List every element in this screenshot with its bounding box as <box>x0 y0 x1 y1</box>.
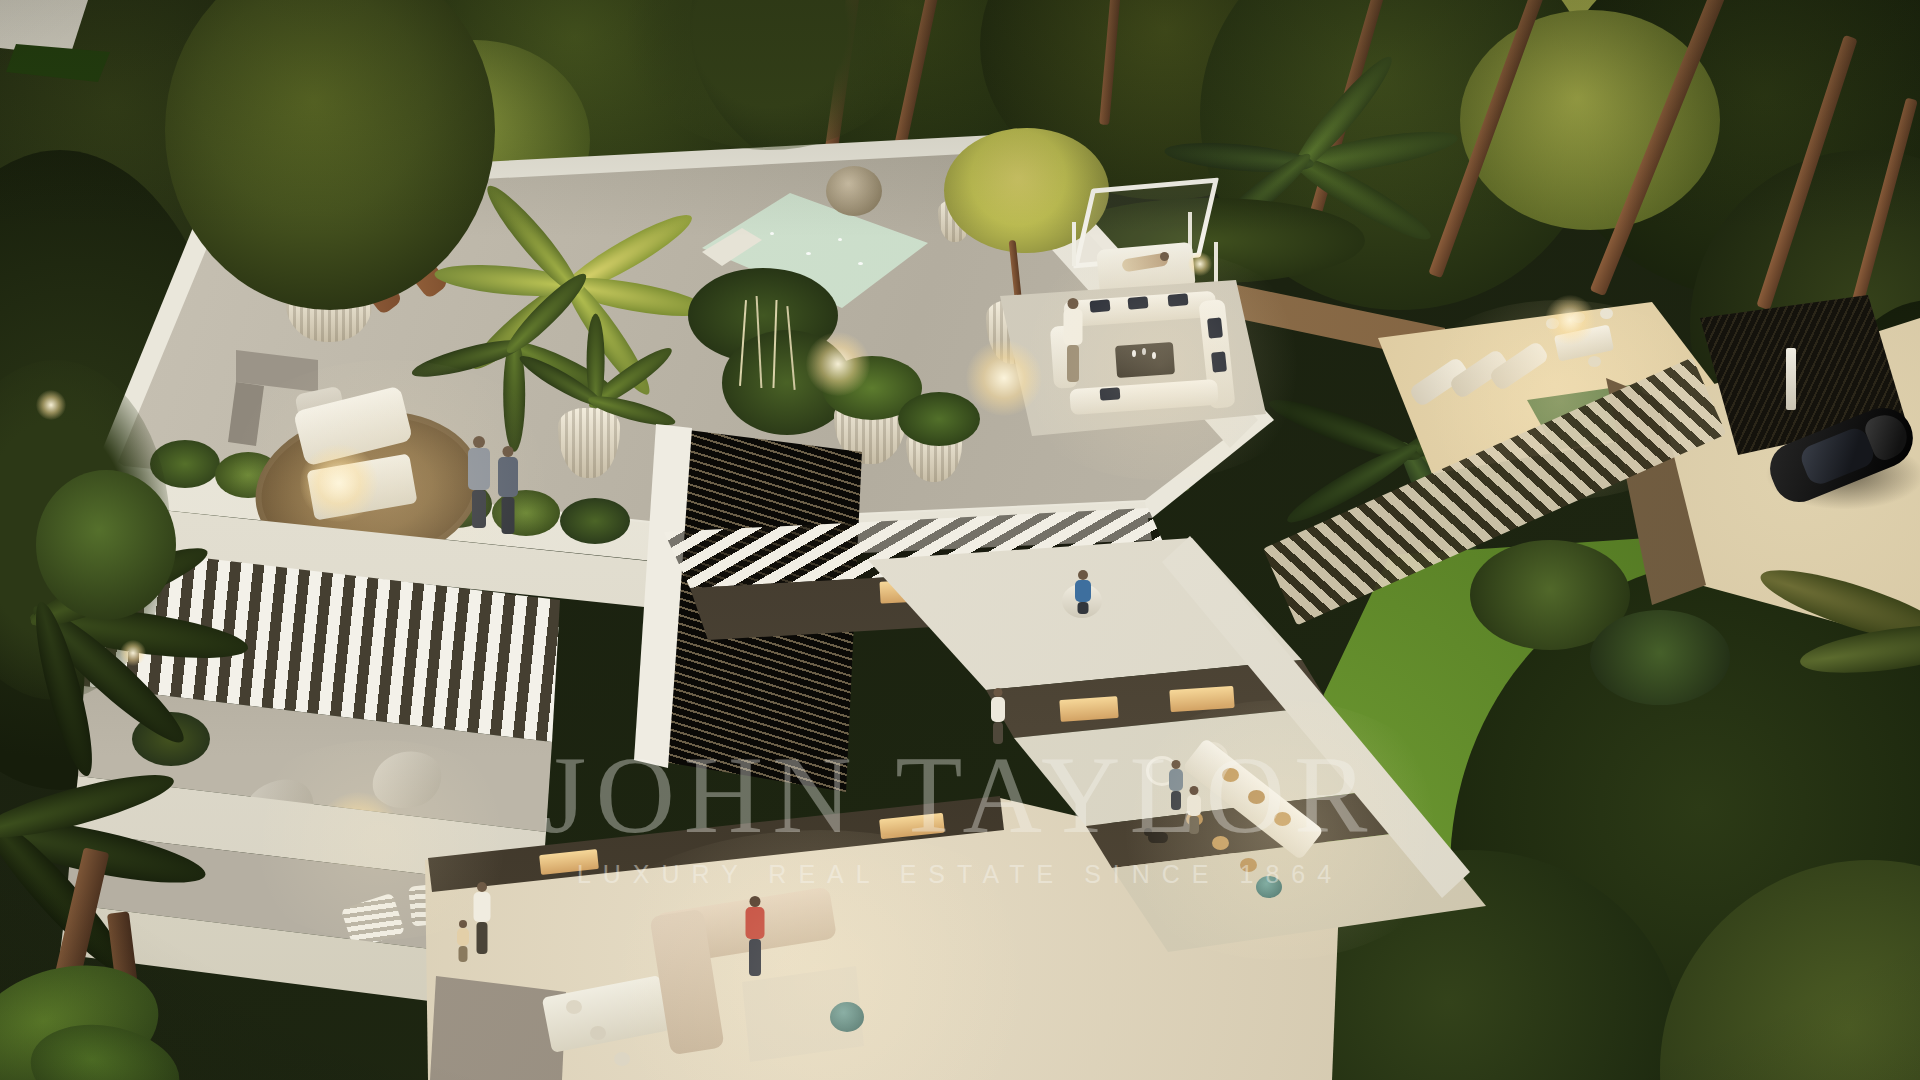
navy-cushion <box>1128 296 1149 310</box>
navy-cushion <box>1100 387 1121 400</box>
spa-dining-chair <box>1588 356 1601 367</box>
bottle <box>1142 348 1146 355</box>
green-palm-cluster <box>505 335 515 345</box>
garden-fern <box>1590 610 1730 705</box>
bottle <box>1132 350 1136 357</box>
lounge-fire-table <box>1115 342 1175 378</box>
villa-rendering-scene: JOHN TAYLOR LUXURY REAL ESTATE SINCE 186… <box>0 0 1920 1080</box>
planter-palm <box>588 392 598 402</box>
person-red-top <box>744 896 766 976</box>
lit-window <box>1169 686 1234 712</box>
child-on-terrace <box>456 920 470 962</box>
watermark-tagline: LUXURY REAL ESTATE SINCE 1864 <box>0 860 1920 889</box>
bar-stool <box>614 1052 630 1066</box>
stone-ball-planter <box>826 166 882 216</box>
planter-grass <box>898 392 980 446</box>
bar-stool <box>590 1026 606 1040</box>
gate-post <box>1786 348 1796 410</box>
spa-dining-chair <box>1572 312 1585 323</box>
navy-cushion <box>1168 293 1189 307</box>
water-sparkle <box>838 238 842 241</box>
lit-tree-canopy <box>1460 10 1720 230</box>
watermark-brand: JOHN TAYLOR <box>0 732 1920 859</box>
navy-cushion <box>1207 317 1223 338</box>
border-plant <box>560 498 630 544</box>
daybed-person-head <box>1160 252 1169 261</box>
water-sparkle <box>806 252 811 255</box>
bar-stool <box>566 1000 582 1014</box>
water-sparkle <box>858 262 863 265</box>
palm-tree <box>1395 440 1405 450</box>
person-standing <box>496 446 520 534</box>
spa-dining-chair <box>1546 318 1559 329</box>
person-standing-sunken-lounge <box>1062 298 1084 382</box>
spa-dining-chair <box>1600 308 1613 319</box>
teal-pouf <box>830 1002 864 1032</box>
person-on-terrace <box>472 882 492 954</box>
seated-person <box>1074 570 1092 614</box>
navy-cushion <box>1090 299 1111 313</box>
pergola-post <box>1072 222 1076 266</box>
lit-window <box>1059 696 1118 722</box>
person-standing <box>466 436 492 528</box>
water-sparkle <box>770 232 774 235</box>
pergola-post <box>1214 242 1218 286</box>
foreground-palm <box>30 600 40 610</box>
lit-shrub <box>36 470 176 620</box>
navy-cushion <box>1211 351 1227 372</box>
palm-tree <box>1290 150 1300 160</box>
bottle <box>1152 352 1156 359</box>
